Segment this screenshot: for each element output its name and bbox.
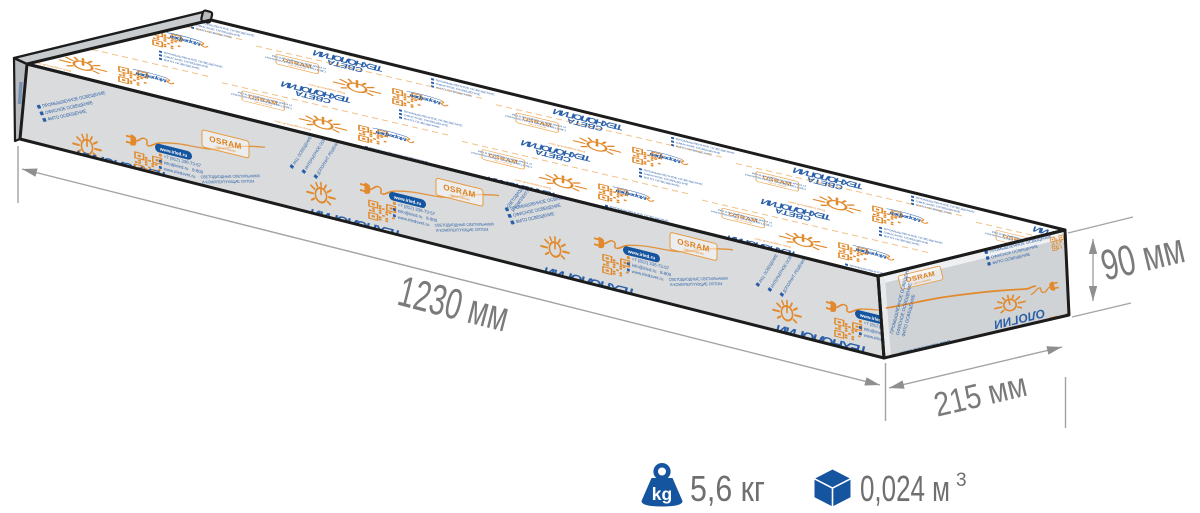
svg-text:90 мм: 90 мм xyxy=(1096,224,1189,290)
svg-text:3: 3 xyxy=(956,470,967,491)
svg-text:1230 мм: 1230 мм xyxy=(393,267,513,341)
svg-text:kg: kg xyxy=(652,484,672,504)
svg-text:0,024 м: 0,024 м xyxy=(860,468,950,509)
svg-text:5,6 кг: 5,6 кг xyxy=(690,468,765,509)
